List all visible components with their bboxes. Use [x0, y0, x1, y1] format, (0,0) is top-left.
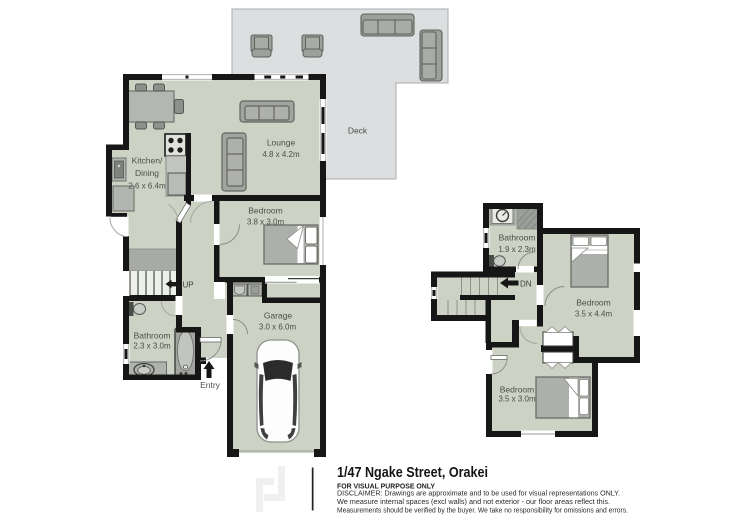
svg-text:Bathroom: Bathroom [134, 331, 171, 341]
svg-text:2.3 x 3.0m: 2.3 x 3.0m [133, 342, 171, 351]
svg-text:Lounge: Lounge [267, 138, 296, 148]
svg-text:Bedroom: Bedroom [248, 206, 283, 216]
svg-text:DN: DN [520, 280, 532, 289]
svg-text:Entry: Entry [200, 380, 221, 390]
svg-text:2.6 x 6.4m: 2.6 x 6.4m [128, 182, 166, 191]
svg-text:Bedroom: Bedroom [576, 298, 611, 308]
svg-text:DISCLAIMER: Drawings are appr: DISCLAIMER: Drawings are approximate and… [337, 491, 620, 498]
svg-text:Bedroom: Bedroom [500, 385, 535, 395]
svg-text:Garage: Garage [264, 311, 293, 321]
svg-text:We measure internal spaces (ex: We measure internal spaces (excl walls) … [337, 499, 610, 506]
svg-text:Kitchen/: Kitchen/ [132, 156, 163, 166]
svg-text:4.8 x 4.2m: 4.8 x 4.2m [262, 150, 300, 159]
svg-text:3.0 x 6.0m: 3.0 x 6.0m [259, 323, 297, 332]
svg-text:Bathroom: Bathroom [499, 233, 536, 243]
svg-text:FOR VISUAL PURPOSE ONLY: FOR VISUAL PURPOSE ONLY [337, 484, 435, 491]
svg-text:Measurements should be verifie: Measurements should be verified by the b… [337, 508, 628, 515]
svg-text:3.8 x 3.0m: 3.8 x 3.0m [247, 218, 285, 227]
svg-text:Deck: Deck [348, 126, 368, 136]
svg-text:3.5 x 4.4m: 3.5 x 4.4m [575, 310, 613, 319]
svg-text:UP: UP [183, 281, 194, 290]
svg-text:Dining: Dining [135, 168, 159, 178]
svg-text:1.9 x 2.3m: 1.9 x 2.3m [498, 245, 536, 254]
svg-text:3.5 x 3.0m: 3.5 x 3.0m [498, 395, 536, 404]
svg-text:1/47 Ngake Street, Orakei: 1/47 Ngake Street, Orakei [337, 464, 488, 481]
